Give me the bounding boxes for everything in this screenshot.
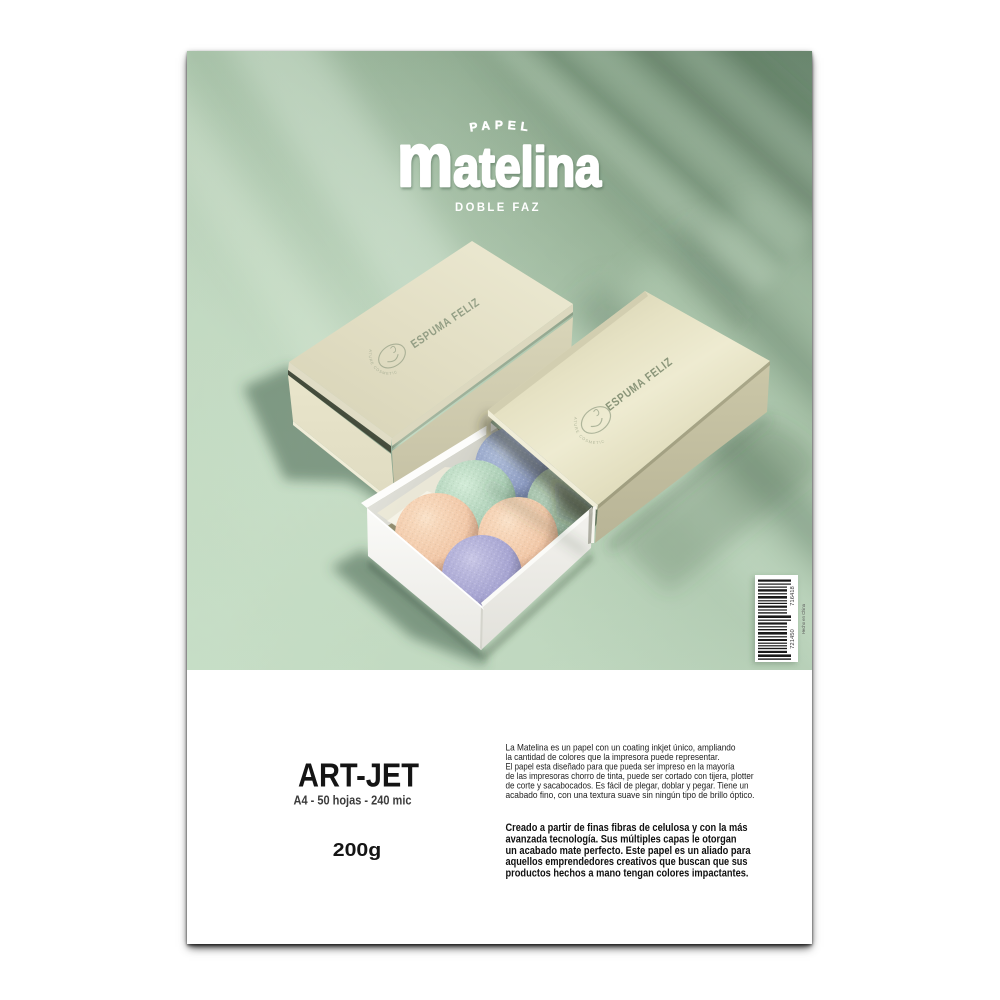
- svg-text:aquellos emprendedores creativ: aquellos emprendedores creativos que bus…: [506, 856, 748, 868]
- svg-text:A4 - 50 hojas - 240 mic: A4 - 50 hojas - 240 mic: [294, 794, 412, 808]
- svg-text:productos hechos a mano tengan: productos hechos a mano tengan colores i…: [506, 867, 749, 879]
- svg-text:acabado fino, con una textura: acabado fino, con una textura suave sin …: [506, 789, 755, 800]
- svg-text:716418: 716418: [790, 585, 796, 605]
- svg-text:Creado a partir de finas fibra: Creado a partir de finas fibras de celul…: [506, 822, 748, 834]
- svg-text:avanzada tecnología. Sus múlt: avanzada tecnología. Sus múltiples capas…: [506, 834, 737, 846]
- svg-text:DOBLE FAZ: DOBLE FAZ: [455, 202, 541, 214]
- svg-text:200g: 200g: [333, 840, 382, 860]
- svg-text:un acabado mate perfecto. Este: un acabado mate perfecto. Este papel es …: [506, 845, 752, 857]
- svg-text:Hecho en China: Hecho en China: [801, 603, 806, 634]
- svg-text:721450: 721450: [790, 628, 796, 648]
- svg-text:ART-JET: ART-JET: [298, 758, 419, 795]
